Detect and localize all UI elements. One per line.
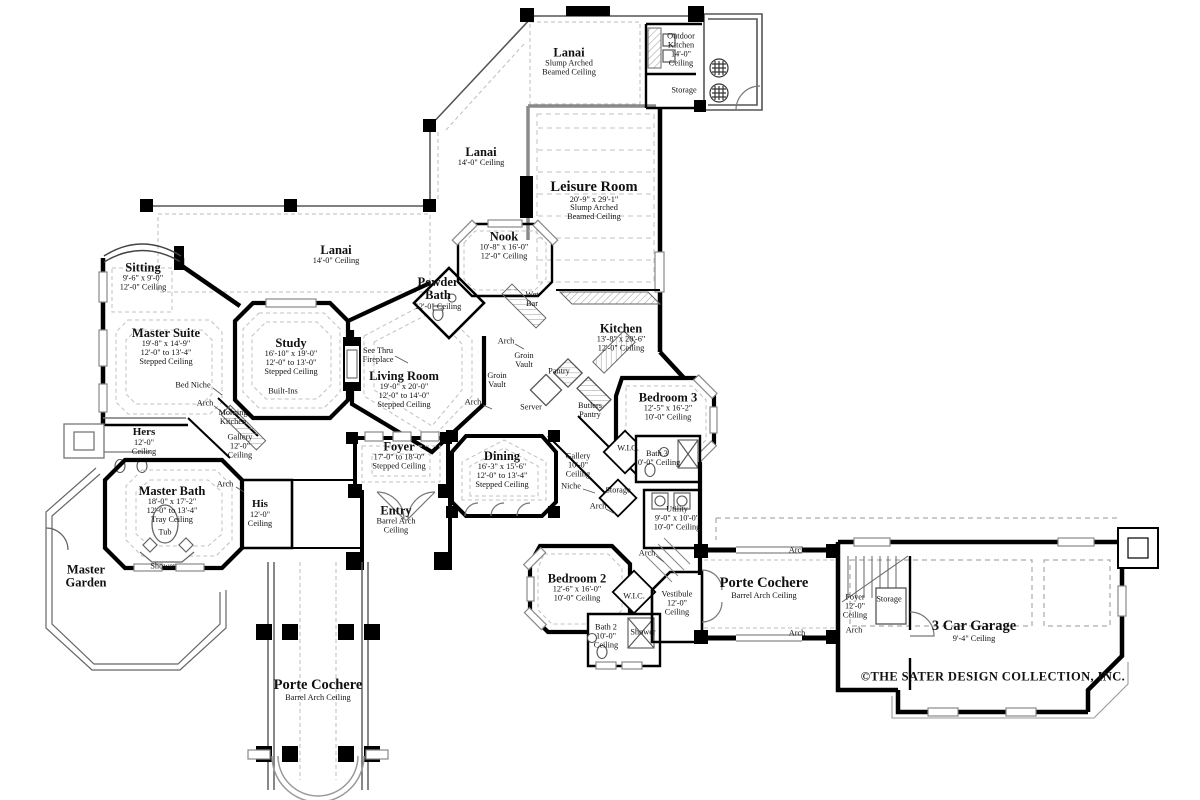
lanai-top-label: LanaiSlump ArchedBeamed Ceiling xyxy=(542,46,596,77)
living-room-label: Living Room19'-0" x 20'-0"12'-0" to 14'-… xyxy=(369,370,439,410)
tub-subtext: Tub xyxy=(158,529,171,538)
his-title: His xyxy=(248,499,272,511)
lanai-main-label: Lanai14'-0" Ceiling xyxy=(313,244,360,266)
leisure-room-label: Leisure Room20'-9" x 29'-1"Slump ArchedB… xyxy=(550,180,637,222)
porte-cochere-east-label: Porte CochereBarrel Arch Ceiling xyxy=(720,576,809,600)
arch-wetbar-label: Arch xyxy=(498,338,515,347)
shower-2-label: Shower xyxy=(630,629,655,638)
powder-bath-subtext: 12'-0" Ceiling xyxy=(415,303,462,312)
pantry-subtext: Pantry xyxy=(548,368,570,377)
butlers-pantry-label: ButlersPantry xyxy=(578,402,602,420)
arch-vestibule-label: Arch xyxy=(639,550,656,559)
groin-vault-upper-label: GroinVault xyxy=(514,352,533,370)
floor-plan-page: LanaiSlump ArchedBeamed CeilingOutdoorKi… xyxy=(0,0,1200,800)
arch-pc-east-bottom-label: Arch xyxy=(789,630,806,639)
bath-3-subtext: 10'-0" Ceiling xyxy=(634,459,681,468)
storage-garage-label: Storage xyxy=(876,596,901,605)
butlers-pantry-subtext: Pantry xyxy=(578,411,602,420)
bedroom-2-title: Bedroom 2 xyxy=(548,572,606,585)
niche-subtext: Niche xyxy=(561,483,581,492)
shower-master-subtext: Shower xyxy=(150,563,175,572)
leisure-room-subtext: Beamed Ceiling xyxy=(550,213,637,222)
arch-wetbar-subtext: Arch xyxy=(498,338,515,347)
arch-pc-east-bottom-subtext: Arch xyxy=(789,630,806,639)
bedroom-3-label: Bedroom 312'-5" x 16'-2"10'-0" Ceiling xyxy=(639,391,697,422)
wic-2-label: W.I.C. xyxy=(623,593,645,602)
wic-2-subtext: W.I.C. xyxy=(623,593,645,602)
bedroom-3-title: Bedroom 3 xyxy=(639,391,697,404)
arch-master-subtext: Arch xyxy=(197,400,214,409)
lanai-top-subtext: Beamed Ceiling xyxy=(542,69,596,78)
entry-title: Entry xyxy=(377,504,416,517)
hers-label: Hers12'-0"Ceiling xyxy=(132,427,156,457)
porte-cochere-south-title: Porte Cochere xyxy=(274,678,363,694)
foyer-label: Foyer17'-0" to 18'-0"Stepped Ceiling xyxy=(372,440,425,471)
vestibule-label: Vestibule12'-0"Ceiling xyxy=(662,591,693,618)
porte-cochere-east-title: Porte Cochere xyxy=(720,576,809,592)
living-room-subtext: Stepped Ceiling xyxy=(369,401,439,410)
arch-gallery-label: Arch xyxy=(590,503,607,512)
his-subtext: Ceiling xyxy=(248,520,272,529)
arch-pc-east-top-label: Arch xyxy=(789,547,806,556)
utility-subtext: 10'-0" Ceiling xyxy=(654,523,701,532)
entry-label: EntryBarrel ArchCeiling xyxy=(377,504,416,535)
dining-title: Dining xyxy=(475,450,528,463)
lanai-main-title: Lanai xyxy=(313,244,360,257)
his-label: His12'-0"Ceiling xyxy=(248,499,272,529)
tub-label: Tub xyxy=(158,529,171,538)
shower-2-subtext: Shower xyxy=(630,629,655,638)
nook-subtext: 12'-0" Ceiling xyxy=(480,253,528,262)
niche-label: Niche xyxy=(561,483,581,492)
nook-title: Nook xyxy=(480,230,528,243)
master-garden-title: Garden xyxy=(66,577,107,590)
lanai-top-title: Lanai xyxy=(542,46,596,59)
study-subtext: Stepped Ceiling xyxy=(264,368,317,377)
foyer-garage-subtext: Ceiling xyxy=(843,611,867,620)
garage-subtext: 9'-4" Ceiling xyxy=(932,634,1016,643)
lanai-upper-subtext: 14'-0" Ceiling xyxy=(458,159,505,168)
dining-subtext: Stepped Ceiling xyxy=(475,481,528,490)
foyer-subtext: Stepped Ceiling xyxy=(372,463,425,472)
storage-garage-subtext: Storage xyxy=(876,596,901,605)
garage-title: 3 Car Garage xyxy=(932,619,1016,635)
master-suite-label: Master Suite19'-8" x 14'-9"12'-0" to 13'… xyxy=(132,327,200,367)
server-label: Server xyxy=(520,404,542,413)
lanai-main-subtext: 14'-0" Ceiling xyxy=(313,257,360,266)
storage-hall-subtext: Storage xyxy=(605,487,630,496)
arch-living-subtext: Arch xyxy=(465,399,482,408)
arch-garage-subtext: Arch xyxy=(846,627,863,636)
bed-niche-label: Bed Niche xyxy=(175,382,210,391)
arch-his-subtext: Arch xyxy=(217,481,234,490)
porte-cochere-east-subtext: Barrel Arch Ceiling xyxy=(720,591,809,600)
groin-vault-lower-subtext: Vault xyxy=(487,381,506,390)
bedroom-2-subtext: 10'-0" Ceiling xyxy=(548,595,606,604)
shower-master-label: Shower xyxy=(150,563,175,572)
bedroom-2-label: Bedroom 212'-6" x 16'-0"10'-0" Ceiling xyxy=(548,572,606,603)
gallery-main-subtext: Ceiling xyxy=(566,470,591,479)
leisure-room-title: Leisure Room xyxy=(550,180,637,196)
powder-bath-title: Powder xyxy=(415,276,462,289)
sitting-subtext: 12'-0" Ceiling xyxy=(120,284,167,293)
arch-living-label: Arch xyxy=(465,399,482,408)
arch-master-label: Arch xyxy=(197,400,214,409)
bath-3-label: Bath 310'-0" Ceiling xyxy=(634,450,681,468)
kitchen-label: Kitchen13'-8" x 20'-6"12'-0" Ceiling xyxy=(597,322,645,353)
wet-bar-label: WetBar xyxy=(525,291,538,309)
bed-niche-subtext: Bed Niche xyxy=(175,382,210,391)
see-thru-fireplace-label: See ThruFireplace xyxy=(363,347,394,365)
morning-kitchen-subtext: Kitchen xyxy=(218,418,247,427)
master-garden-label: MasterGarden xyxy=(66,564,107,591)
storage-outdoor-subtext: Storage xyxy=(671,87,696,96)
powder-bath-label: PowderBath12'-0" Ceiling xyxy=(415,276,462,312)
pantry-label: Pantry xyxy=(548,368,570,377)
lanai-upper-title: Lanai xyxy=(458,146,505,159)
bedroom-3-subtext: 10'-0" Ceiling xyxy=(639,414,697,423)
nook-label: Nook10'-8" x 16'-0"12'-0" Ceiling xyxy=(480,230,528,261)
master-suite-subtext: Stepped Ceiling xyxy=(132,358,200,367)
hers-title: Hers xyxy=(132,427,156,439)
built-ins-label: Built-Ins xyxy=(268,388,298,397)
arch-his-label: Arch xyxy=(217,481,234,490)
foyer-title: Foyer xyxy=(372,440,425,453)
arch-pc-east-top-subtext: Arch xyxy=(789,547,806,556)
morning-kitchen-label: MorningKitchen xyxy=(218,409,247,427)
storage-outdoor-label: Storage xyxy=(671,87,696,96)
entry-subtext: Ceiling xyxy=(377,527,416,536)
outdoor-kitchen-subtext: Ceiling xyxy=(667,59,695,68)
bath-2-label: Bath 210'-0"Ceiling xyxy=(594,624,618,651)
porte-cochere-south-label: Porte CochereBarrel Arch Ceiling xyxy=(274,678,363,702)
bath-2-subtext: Ceiling xyxy=(594,641,618,650)
arch-gallery-subtext: Arch xyxy=(590,503,607,512)
gallery-master-label: Gallery12'-0"Ceiling xyxy=(228,434,253,461)
foyer-garage-label: Foyer12'-0"Ceiling xyxy=(843,594,867,621)
gallery-main-label: Gallery10'-0"Ceiling xyxy=(566,453,591,480)
groin-vault-upper-subtext: Vault xyxy=(514,361,533,370)
study-title: Study xyxy=(264,337,317,350)
hers-subtext: Ceiling xyxy=(132,448,156,457)
powder-bath-title: Bath xyxy=(415,290,462,303)
kitchen-title: Kitchen xyxy=(597,322,645,335)
utility-label: Utility9'-0" x 10'-0"10'-0" Ceiling xyxy=(654,506,701,533)
master-garden-title: Master xyxy=(66,564,107,577)
gallery-master-subtext: Ceiling xyxy=(228,451,253,460)
groin-vault-lower-label: GroinVault xyxy=(487,372,506,390)
master-suite-title: Master Suite xyxy=(132,327,200,340)
storage-hall-label: Storage xyxy=(605,487,630,496)
lanai-upper-label: Lanai14'-0" Ceiling xyxy=(458,146,505,168)
dining-label: Dining16'-3" x 15'-6"12'-0" to 13'-4"Ste… xyxy=(475,450,528,490)
porte-cochere-south-subtext: Barrel Arch Ceiling xyxy=(274,693,363,702)
copyright-text: ©THE SATER DESIGN COLLECTION, INC. xyxy=(861,670,1125,683)
kitchen-subtext: 12'-0" Ceiling xyxy=(597,345,645,354)
outdoor-kitchen-label: OutdoorKitchen14'-0"Ceiling xyxy=(667,32,695,68)
garage-label: 3 Car Garage9'-4" Ceiling xyxy=(932,619,1016,643)
master-bath-title: Master Bath xyxy=(139,485,206,498)
vestibule-subtext: Ceiling xyxy=(662,608,693,617)
arch-vestibule-subtext: Arch xyxy=(639,550,656,559)
built-ins-subtext: Built-Ins xyxy=(268,388,298,397)
arch-garage-label: Arch xyxy=(846,627,863,636)
sitting-title: Sitting xyxy=(120,261,167,274)
living-room-title: Living Room xyxy=(369,370,439,383)
server-subtext: Server xyxy=(520,404,542,413)
wet-bar-subtext: Bar xyxy=(525,300,538,309)
see-thru-fireplace-subtext: Fireplace xyxy=(363,356,394,365)
master-bath-subtext: Tray Ceiling xyxy=(139,516,206,525)
study-label: Study16'-10" x 19'-0"12'-0" to 13'-0"Ste… xyxy=(264,337,317,377)
sitting-label: Sitting9'-6" x 9'-0"12'-0" Ceiling xyxy=(120,261,167,292)
master-bath-label: Master Bath18'-0" x 17'-2"12'-0" to 13'-… xyxy=(139,485,206,525)
